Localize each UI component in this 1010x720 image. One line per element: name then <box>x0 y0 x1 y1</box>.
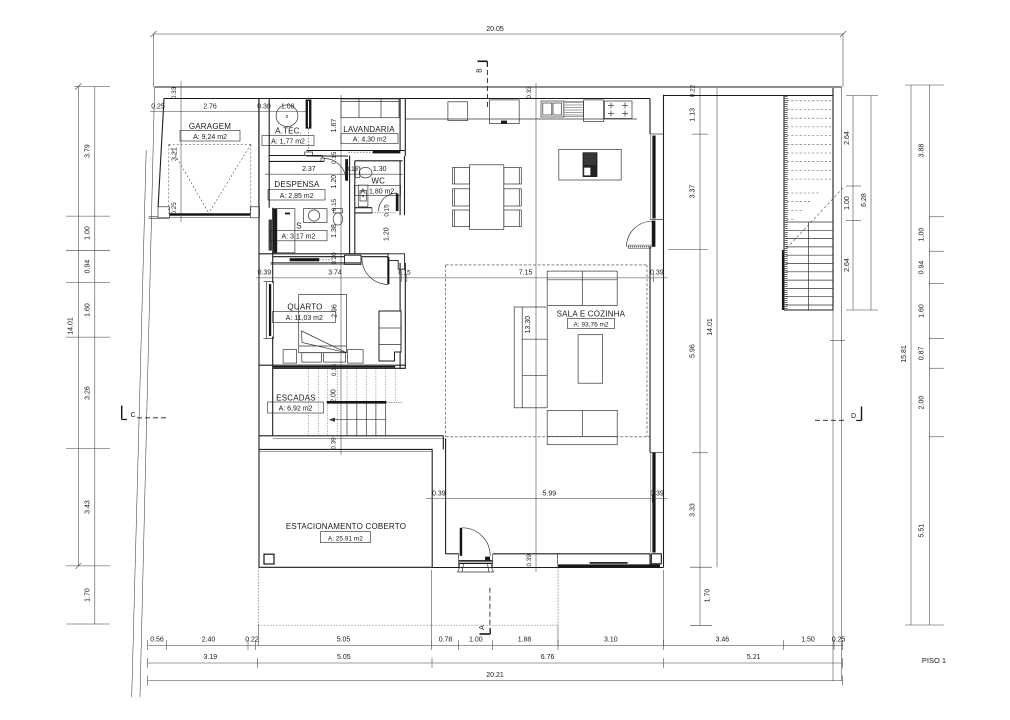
svg-text:1.00: 1.00 <box>844 196 851 210</box>
svg-text:ESCADAS: ESCADAS <box>276 393 316 402</box>
svg-text:2.64: 2.64 <box>844 258 851 272</box>
svg-text:3.43: 3.43 <box>85 500 92 514</box>
svg-text:2.76: 2.76 <box>203 104 217 111</box>
svg-text:0.87: 0.87 <box>918 346 925 360</box>
svg-text:5.05: 5.05 <box>337 654 351 661</box>
svg-text:B: B <box>477 68 484 73</box>
svg-text:0.94: 0.94 <box>85 260 92 274</box>
svg-text:1.38: 1.38 <box>331 224 338 238</box>
svg-text:2.64: 2.64 <box>844 131 851 145</box>
svg-text:1.70: 1.70 <box>705 589 712 603</box>
svg-text:0.22: 0.22 <box>245 637 259 644</box>
svg-text:0.39: 0.39 <box>650 490 664 497</box>
svg-text:0.39: 0.39 <box>331 437 338 450</box>
svg-text:A: 93,76 m2: A: 93,76 m2 <box>573 322 608 329</box>
svg-text:PISO 1: PISO 1 <box>922 656 946 665</box>
svg-text:13.30: 13.30 <box>525 316 532 334</box>
svg-text:2.96: 2.96 <box>332 304 339 318</box>
svg-text:A: A <box>479 625 486 630</box>
svg-text:0.30: 0.30 <box>257 104 271 111</box>
svg-text:20.21: 20.21 <box>486 672 504 679</box>
svg-text:A: 11,03 m2: A: 11,03 m2 <box>286 315 323 322</box>
svg-text:1.50: 1.50 <box>801 637 815 644</box>
svg-text:20.05: 20.05 <box>486 26 504 33</box>
svg-text:QUARTO: QUARTO <box>287 303 322 312</box>
svg-text:0.94: 0.94 <box>918 261 925 275</box>
svg-text:1.67: 1.67 <box>331 119 338 133</box>
svg-text:0.25: 0.25 <box>151 104 165 111</box>
svg-text:3.88: 3.88 <box>918 144 925 158</box>
svg-text:3.26: 3.26 <box>85 386 92 400</box>
svg-text:0.39: 0.39 <box>432 490 446 497</box>
svg-text:A: 4,30 m2: A: 4,30 m2 <box>353 137 387 144</box>
svg-text:A: 6,92 m2: A: 6,92 m2 <box>279 406 313 413</box>
svg-text:0.39: 0.39 <box>258 270 272 277</box>
svg-text:5.51: 5.51 <box>918 524 925 538</box>
svg-text:3.21: 3.21 <box>172 147 179 161</box>
svg-text:GARAGEM: GARAGEM <box>189 122 231 131</box>
svg-text:1.20: 1.20 <box>384 227 391 241</box>
svg-text:ESTACIONAMENTO COBERTO: ESTACIONAMENTO COBERTO <box>286 522 406 531</box>
svg-text:A: 3,17 m2: A: 3,17 m2 <box>281 234 315 241</box>
svg-text:1.70: 1.70 <box>85 588 92 602</box>
svg-text:1.13: 1.13 <box>690 108 697 122</box>
svg-text:3.19: 3.19 <box>203 654 217 661</box>
svg-text:SALA E COZINHA: SALA E COZINHA <box>557 310 626 319</box>
svg-text:0.15: 0.15 <box>331 198 338 211</box>
svg-text:2.37: 2.37 <box>302 166 316 173</box>
svg-text:6.76: 6.76 <box>541 654 555 661</box>
svg-text:6.28: 6.28 <box>861 193 868 207</box>
svg-text:WC: WC <box>371 176 385 185</box>
svg-text:0.56: 0.56 <box>150 637 164 644</box>
svg-text:15.81: 15.81 <box>901 345 908 363</box>
svg-text:1.20: 1.20 <box>331 175 338 189</box>
svg-text:2.00: 2.00 <box>918 396 925 410</box>
svg-text:0.33: 0.33 <box>171 86 178 99</box>
svg-text:5.05: 5.05 <box>337 637 351 644</box>
svg-text:5.21: 5.21 <box>747 654 761 661</box>
svg-text:0.78: 0.78 <box>439 637 453 644</box>
svg-text:5.99: 5.99 <box>542 490 556 497</box>
svg-text:3.10: 3.10 <box>604 637 618 644</box>
svg-text:A: 2,85 m2: A: 2,85 m2 <box>280 193 314 200</box>
svg-text:1.00: 1.00 <box>85 226 92 240</box>
svg-text:2.00: 2.00 <box>331 389 338 403</box>
svg-text:A: 9,24 m2: A: 9,24 m2 <box>193 134 227 141</box>
svg-text:14.01: 14.01 <box>68 317 75 335</box>
svg-text:0.39: 0.39 <box>650 270 664 277</box>
svg-text:3.37: 3.37 <box>690 185 697 199</box>
svg-text:A: 1,77 m2: A: 1,77 m2 <box>271 139 305 146</box>
svg-text:1.00: 1.00 <box>918 228 925 242</box>
svg-text:0.15: 0.15 <box>331 151 338 164</box>
svg-text:3.33: 3.33 <box>690 503 697 517</box>
svg-text:1.00: 1.00 <box>469 637 483 644</box>
svg-text:C: C <box>130 412 135 419</box>
svg-text:3.74: 3.74 <box>328 270 342 277</box>
svg-text:1.88: 1.88 <box>518 637 532 644</box>
svg-text:3.79: 3.79 <box>85 144 92 158</box>
svg-text:LAVANDARIA: LAVANDARIA <box>343 125 395 134</box>
svg-text:0.25: 0.25 <box>171 202 178 215</box>
svg-text:A.TÉC.: A.TÉC. <box>275 127 302 136</box>
svg-text:D: D <box>851 413 856 420</box>
svg-text:0.15: 0.15 <box>384 204 391 217</box>
svg-text:2.40: 2.40 <box>202 637 216 644</box>
svg-text:0.25: 0.25 <box>832 637 846 644</box>
svg-text:7.15: 7.15 <box>519 270 533 277</box>
svg-text:0.15: 0.15 <box>398 270 411 277</box>
svg-text:3.46: 3.46 <box>716 637 730 644</box>
svg-text:0.33: 0.33 <box>526 86 533 99</box>
svg-text:5.96: 5.96 <box>690 344 697 358</box>
svg-text:14.01: 14.01 <box>707 318 714 336</box>
svg-text:DESPENSA: DESPENSA <box>274 180 320 189</box>
svg-text:1.60: 1.60 <box>85 303 92 317</box>
svg-text:0.39: 0.39 <box>526 554 533 567</box>
svg-text:S: S <box>296 222 302 231</box>
svg-text:A: 25.91 m2: A: 25.91 m2 <box>328 535 363 542</box>
svg-text:1.30: 1.30 <box>373 166 387 173</box>
svg-text:1.60: 1.60 <box>918 304 925 318</box>
